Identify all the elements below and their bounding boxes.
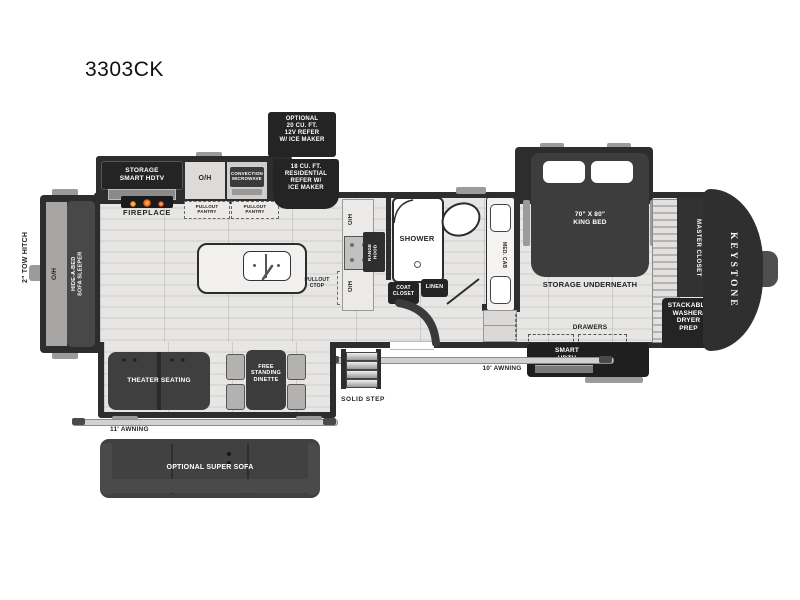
floorplan-canvas: 3303CK O/H HIDE-A-BED SOFA SLEEPER 2" TO… [0,0,800,600]
door-swing-lines [0,0,800,600]
